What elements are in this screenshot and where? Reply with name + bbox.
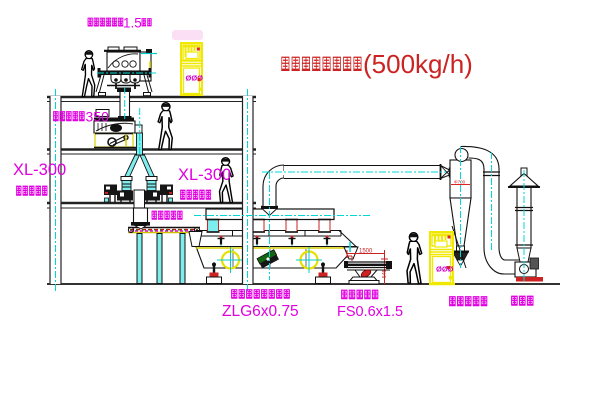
svg-text:ØØØ: ØØØ bbox=[436, 265, 454, 274]
svg-text:XL-300: XL-300 bbox=[13, 161, 66, 179]
svg-text:(500kg/h): (500kg/h) bbox=[363, 49, 473, 79]
svg-text:Φ700: Φ700 bbox=[454, 180, 466, 185]
svg-text:ZLG6x0.75: ZLG6x0.75 bbox=[222, 303, 299, 320]
svg-text:XL-300: XL-300 bbox=[178, 166, 231, 184]
svg-text:1.5: 1.5 bbox=[123, 16, 142, 31]
svg-text:FS0.6x1.5: FS0.6x1.5 bbox=[337, 304, 403, 320]
svg-text:545: 545 bbox=[382, 269, 388, 278]
svg-text:350: 350 bbox=[86, 109, 110, 125]
svg-text:1500: 1500 bbox=[359, 249, 373, 255]
